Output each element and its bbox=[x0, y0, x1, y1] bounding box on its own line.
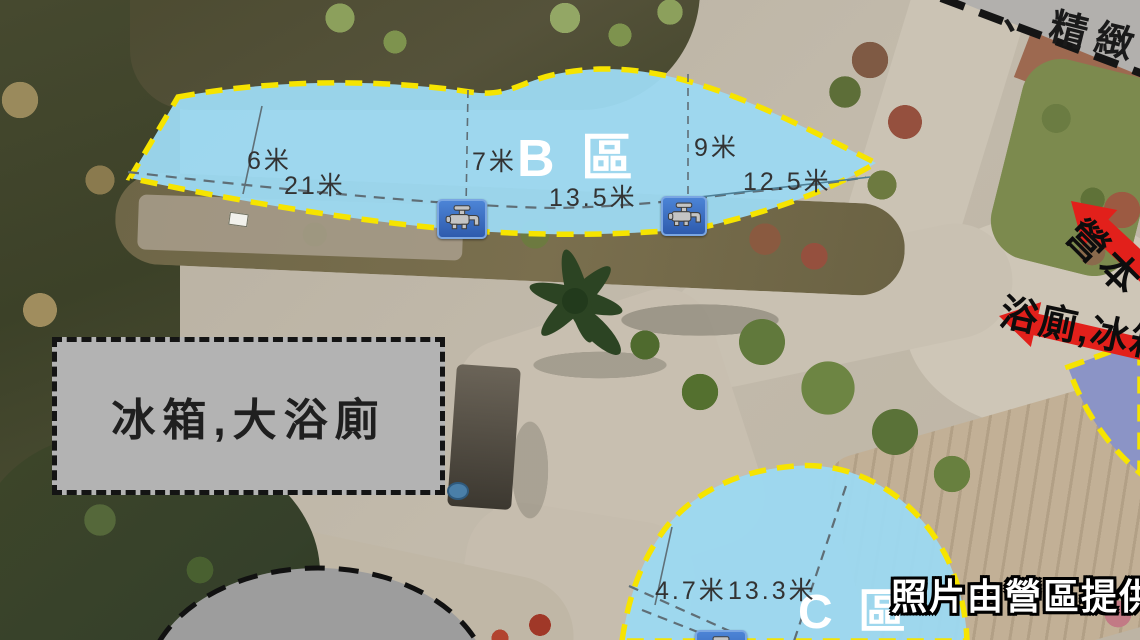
measure-9m-label: 9米 bbox=[694, 128, 739, 164]
water-tap-icon bbox=[695, 630, 747, 640]
measure-4-7m-label: 4.7米 bbox=[655, 571, 727, 607]
measure-21m-label: 21米 bbox=[284, 166, 346, 202]
gray-blob-area bbox=[146, 568, 490, 640]
water-tap-icon bbox=[661, 196, 707, 236]
campground-aerial-map: B 區 6米 21米 7米 13.5米 9米 12.5米 C 區 4.7米 13… bbox=[0, 0, 1140, 640]
measure-12-5m-label: 12.5米 bbox=[743, 162, 832, 198]
measure-13-5m-label: 13.5米 bbox=[549, 178, 638, 214]
water-tap-icon bbox=[437, 199, 487, 239]
facility-note-box: 冰箱,大浴廁 bbox=[52, 337, 445, 495]
measure-13-3m-label: 13.3米 bbox=[728, 571, 817, 607]
photo-credit-caption: 照片由營區提供 bbox=[891, 568, 1140, 620]
measure-7m-label: 7米 bbox=[472, 142, 517, 178]
facility-note-text: 冰箱,大浴廁 bbox=[111, 384, 385, 448]
